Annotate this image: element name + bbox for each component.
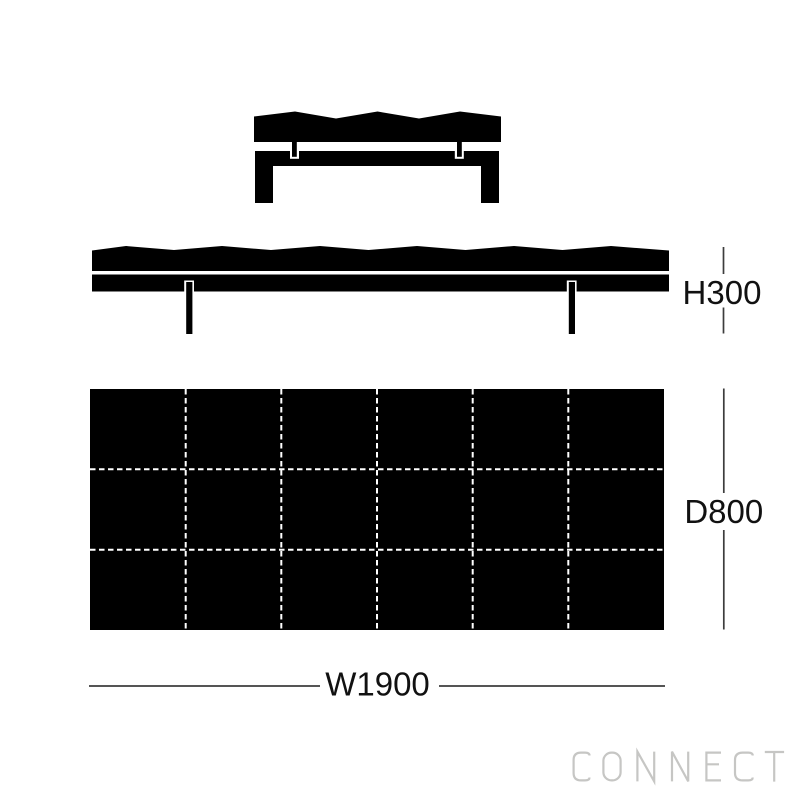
svg-text:H300: H300: [683, 274, 762, 311]
svg-text:D800: D800: [684, 493, 763, 530]
svg-text:W1900: W1900: [325, 666, 430, 703]
